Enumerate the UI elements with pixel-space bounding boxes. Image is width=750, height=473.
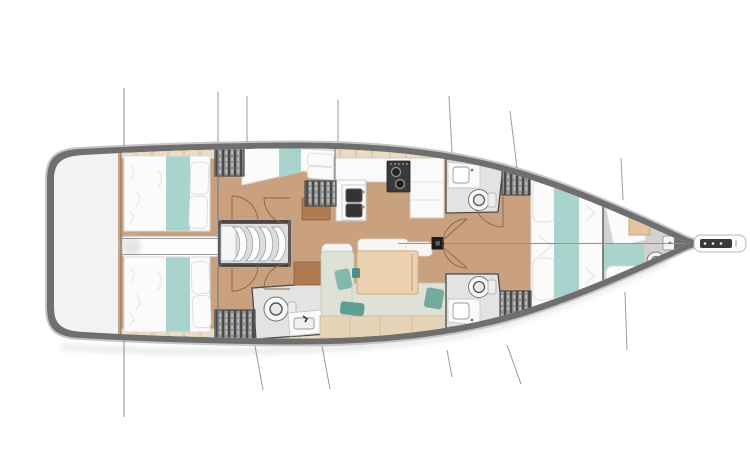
pillow xyxy=(191,261,210,294)
engine-corridor xyxy=(121,236,218,257)
aft-bed-bottom-runner xyxy=(166,258,190,332)
pillow xyxy=(533,258,554,300)
interior xyxy=(118,144,693,345)
locker-mid-top xyxy=(305,181,336,206)
galley-counter-right xyxy=(410,158,444,218)
head-sink xyxy=(288,310,324,336)
aft-cabin-top xyxy=(124,156,210,231)
pillow xyxy=(192,295,211,328)
stove xyxy=(387,161,410,192)
pillow xyxy=(189,196,208,229)
toilet xyxy=(469,277,497,298)
head-top-sink xyxy=(448,162,480,188)
pillow xyxy=(307,153,334,167)
bowsprit xyxy=(694,235,746,252)
yacht-layout-diagram xyxy=(0,0,750,473)
pillow xyxy=(190,162,209,195)
pillow xyxy=(307,166,334,180)
aft-bed-top-runner xyxy=(166,157,190,231)
companionway-stairs xyxy=(218,220,291,267)
aft-cabin-bottom xyxy=(124,257,211,332)
yacht-layout-page xyxy=(0,0,750,473)
salon-table xyxy=(357,251,418,294)
locker-aft-top xyxy=(215,145,244,176)
toilet xyxy=(469,190,497,211)
nav-seat xyxy=(294,262,321,285)
galley-sinks xyxy=(342,185,366,220)
head-bottom-sink xyxy=(448,299,480,325)
